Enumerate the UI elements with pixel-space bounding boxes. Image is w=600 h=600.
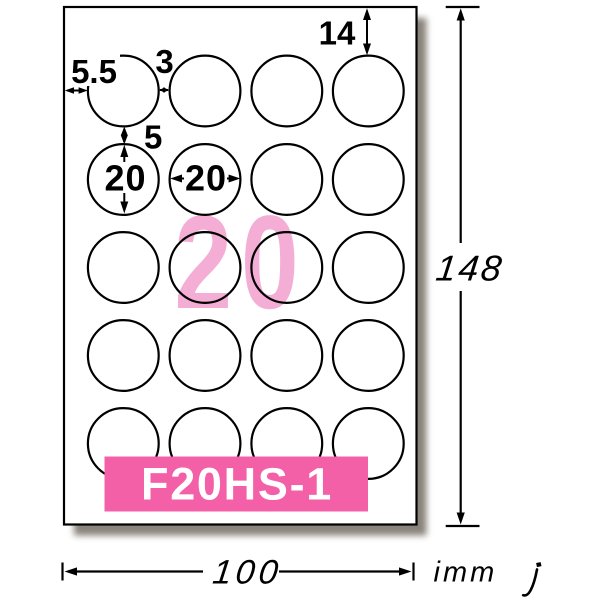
svg-text:148: 148 <box>434 248 507 289</box>
svg-text:14: 14 <box>319 15 356 52</box>
svg-text:F20HS-1: F20HS-1 <box>141 459 333 510</box>
svg-text:5: 5 <box>144 119 162 156</box>
svg-text:20: 20 <box>185 158 227 199</box>
svg-text:imm: imm <box>434 557 498 589</box>
svg-text:100: 100 <box>211 554 284 592</box>
svg-text:3: 3 <box>155 43 173 80</box>
svg-text:20: 20 <box>104 158 146 199</box>
svg-text:5.5: 5.5 <box>71 53 117 90</box>
